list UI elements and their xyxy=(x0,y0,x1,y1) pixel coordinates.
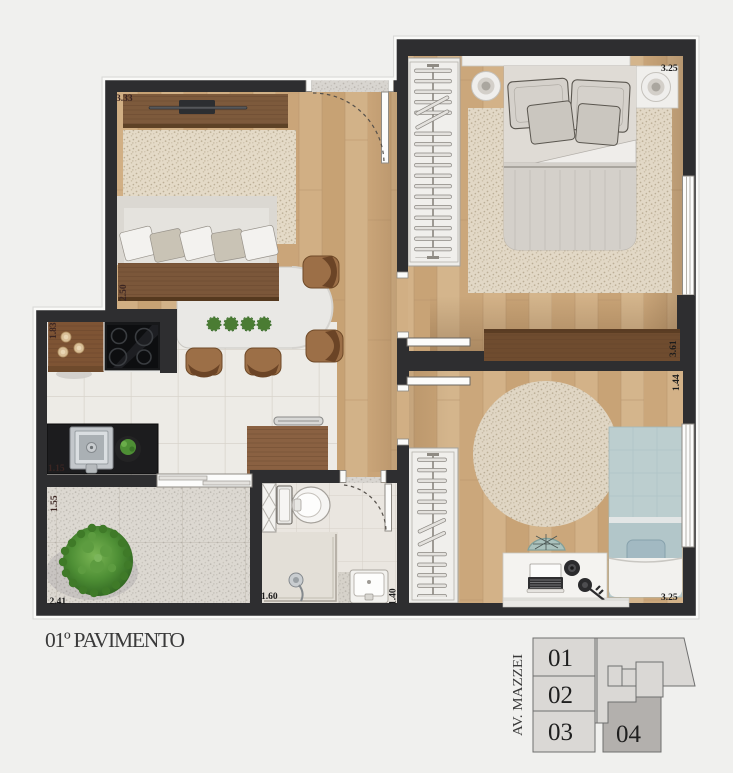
svg-text:01º PAVIMENTO: 01º PAVIMENTO xyxy=(45,628,185,652)
svg-text:04: 04 xyxy=(616,721,642,748)
svg-text:AV. MAZZEI: AV. MAZZEI xyxy=(510,653,525,736)
svg-text:1.60: 1.60 xyxy=(261,592,278,602)
svg-text:3.33: 3.33 xyxy=(116,94,133,104)
svg-text:3.61: 3.61 xyxy=(669,340,679,357)
svg-text:01: 01 xyxy=(548,645,573,672)
svg-text:1.44: 1.44 xyxy=(672,374,682,391)
svg-text:1.83: 1.83 xyxy=(49,322,59,339)
svg-text:2.41: 2.41 xyxy=(50,597,67,607)
svg-text:3.25: 3.25 xyxy=(661,64,678,74)
svg-text:2.50: 2.50 xyxy=(119,284,129,301)
svg-text:1.55: 1.55 xyxy=(50,495,60,512)
svg-text:1.40: 1.40 xyxy=(389,588,399,605)
svg-text:02: 02 xyxy=(548,682,573,709)
svg-text:3.25: 3.25 xyxy=(661,593,678,603)
svg-text:03: 03 xyxy=(548,719,573,746)
svg-text:1.15: 1.15 xyxy=(48,464,65,474)
